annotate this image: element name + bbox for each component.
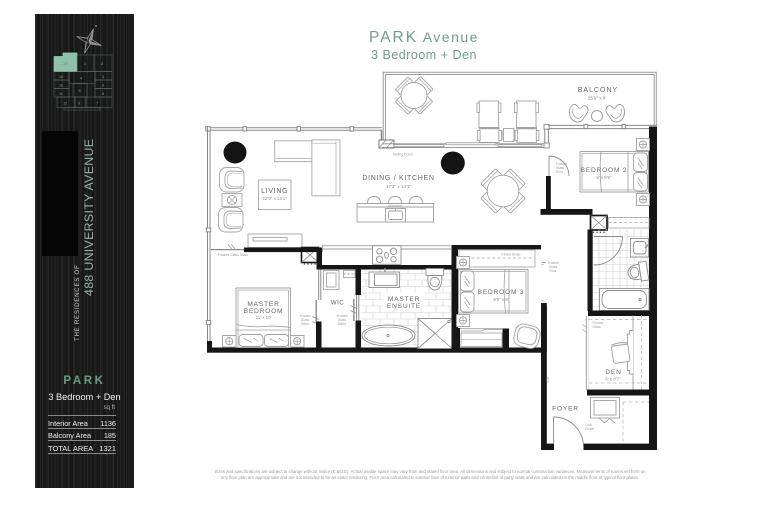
- svg-text:7: 7: [96, 102, 98, 106]
- svg-text:Closet Slider: Closet Slider: [501, 253, 521, 257]
- svg-text:5: 5: [79, 89, 81, 93]
- svg-text:11: 11: [59, 92, 63, 96]
- svg-text:12: 12: [63, 102, 67, 106]
- svg-text:Frosted Glass Slider: Frosted Glass Slider: [218, 253, 250, 257]
- svg-text:BEDROOM 2: BEDROOM 2: [581, 167, 628, 174]
- svg-text:9' x 9'6": 9' x 9'6": [596, 175, 612, 180]
- svg-text:2: 2: [101, 62, 103, 66]
- svg-text:15: 15: [59, 75, 63, 79]
- svg-text:11' x 10': 11' x 10': [256, 315, 272, 320]
- svg-text:Slider: Slider: [338, 322, 347, 326]
- svg-text:4: 4: [80, 77, 82, 81]
- svg-text:BEDROOM 3: BEDROOM 3: [478, 289, 525, 296]
- svg-text:10: 10: [59, 84, 63, 88]
- svg-text:17'3" x 14'1": 17'3" x 14'1": [386, 184, 412, 189]
- svg-text:3: 3: [102, 75, 104, 79]
- svg-text:DINING / KITCHEN: DINING / KITCHEN: [362, 175, 434, 182]
- svg-text:488 UNIVERSITY AVENUE: 488 UNIVERSITY AVENUE: [82, 139, 96, 296]
- svg-text:MASTER: MASTER: [388, 296, 420, 303]
- svg-text:14: 14: [63, 61, 68, 66]
- svg-text:9'6" x 9': 9'6" x 9': [493, 297, 508, 302]
- svg-text:THE RESIDENCES OF: THE RESIDENCES OF: [74, 264, 81, 341]
- svg-text:MASTER: MASTER: [247, 301, 279, 308]
- svg-text:ENSUITE: ENSUITE: [387, 303, 421, 310]
- svg-text:9: 9: [78, 102, 80, 106]
- svg-text:6: 6: [102, 84, 104, 88]
- svg-text:DEN: DEN: [605, 369, 621, 376]
- svg-text:Glass: Glass: [593, 325, 602, 329]
- svg-text:6' x 8'7": 6' x 8'7": [605, 377, 621, 382]
- svg-text:WIC: WIC: [331, 300, 345, 307]
- svg-text:Door: Door: [556, 170, 564, 174]
- svg-text:BEDROOM: BEDROOM: [244, 308, 284, 315]
- svg-text:BALCONY: BALCONY: [578, 87, 618, 94]
- svg-text:LIVING: LIVING: [261, 188, 288, 195]
- svg-text:Closet: Closet: [585, 427, 594, 431]
- svg-text:Door: Door: [550, 269, 558, 273]
- svg-text:Slider: Slider: [301, 322, 310, 326]
- svg-text:FOYER: FOYER: [552, 406, 579, 413]
- svg-text:Sliding Doors: Sliding Doors: [393, 153, 413, 157]
- svg-text:Dishwasher: Dishwasher: [388, 204, 403, 208]
- svg-text:25'9" x 8': 25'9" x 8': [588, 96, 607, 101]
- svg-text:12'9" x 12'1": 12'9" x 12'1": [263, 196, 288, 201]
- svg-text:40'6": 40'6": [546, 376, 550, 383]
- svg-text:8: 8: [102, 92, 104, 96]
- svg-text:1: 1: [84, 62, 86, 66]
